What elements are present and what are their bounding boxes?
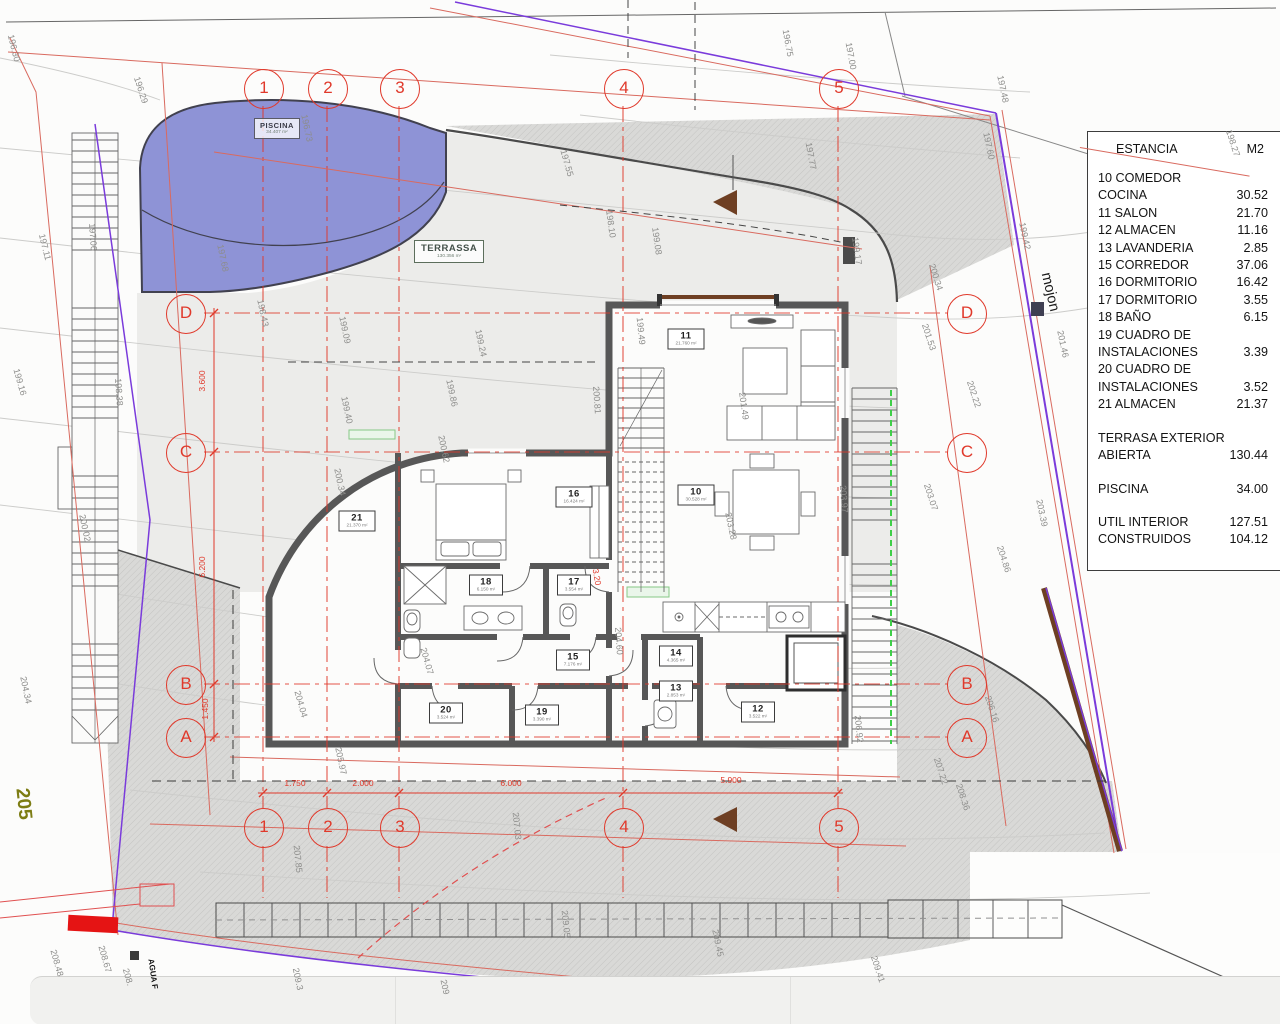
dining-table — [733, 470, 799, 534]
room-area-value: 16.42 — [1236, 274, 1270, 291]
room-area-value: 11.16 — [1237, 222, 1270, 239]
room-name: 15 CORREDOR — [1098, 257, 1236, 274]
room-name: PISCINA — [1098, 481, 1236, 498]
room-area-value: 6.15 — [1243, 309, 1270, 326]
table-row: CONSTRUIDOS104.12 — [1098, 531, 1270, 548]
shaft-box — [787, 636, 845, 690]
mojon-marker — [1031, 302, 1044, 316]
bottom-band — [30, 976, 1280, 1024]
site-plan-canvas: ESTANCIA M2 10 COMEDOR COCINA30.5211 SAL… — [0, 0, 1280, 1024]
room-name: 16 DORMITORIO — [1098, 274, 1236, 291]
agua-marker-icon — [130, 951, 139, 960]
room-name: 21 ALMACEN — [1098, 396, 1236, 413]
band-seam — [790, 977, 791, 1024]
table-row: 16 DORMITORIO16.42 — [1098, 274, 1270, 291]
room-name: 11 SALON — [1098, 205, 1236, 222]
room-area-value: 3.52 — [1243, 379, 1270, 396]
room-name: CONSTRUIDOS — [1098, 531, 1229, 548]
table-row: 19 CUADRO DE INSTALACIONES3.39 — [1098, 327, 1270, 362]
room-area-value: 127.51 — [1229, 514, 1270, 531]
table-row: 15 CORREDOR37.06 — [1098, 257, 1270, 274]
table-row: 20 CUADRO DE INSTALACIONES3.52 — [1098, 361, 1270, 396]
piscina-label: PISCINA 34.407 m² — [254, 118, 300, 139]
table-header-m2: M2 — [1247, 142, 1264, 156]
room-schedule-table: ESTANCIA M2 10 COMEDOR COCINA30.5211 SAL… — [1087, 131, 1280, 571]
hatch-right — [897, 625, 1103, 781]
room-area-value: 30.52 — [1236, 187, 1270, 204]
table-row: PISCINA34.00 — [1098, 481, 1270, 498]
table-row: 12 ALMACEN11.16 — [1098, 222, 1270, 239]
room-name: 13 LAVANDERIA — [1098, 240, 1243, 257]
room-name: 20 CUADRO DE INSTALACIONES — [1098, 361, 1243, 396]
room-name: 10 COMEDOR COCINA — [1098, 170, 1236, 205]
room-area-value: 34.00 — [1236, 481, 1270, 498]
room-name: TERRASA EXTERIOR ABIERTA — [1098, 430, 1229, 465]
terrassa-title: TERRASSA — [421, 243, 477, 254]
terrassa-label: TERRASSA 130.356 m² — [414, 240, 484, 263]
room-name: 17 DORMITORIO — [1098, 292, 1243, 309]
coffee-table — [743, 348, 787, 394]
terrassa-area: 130.356 m² — [427, 254, 472, 259]
room-area-value: 3.55 — [1243, 292, 1270, 309]
sofa-horizontal — [727, 406, 835, 440]
table-row: 13 LAVANDERIA2.85 — [1098, 240, 1270, 257]
table-row: 21 ALMACEN21.37 — [1098, 396, 1270, 413]
room-name: 19 CUADRO DE INSTALACIONES — [1098, 327, 1243, 362]
room-table-rows: 10 COMEDOR COCINA30.5211 SALON21.7012 AL… — [1098, 170, 1270, 549]
room-area-value: 21.37 — [1236, 396, 1270, 413]
table-row: 11 SALON21.70 — [1098, 205, 1270, 222]
table-row: 17 DORMITORIO3.55 — [1098, 292, 1270, 309]
wardrobe — [590, 486, 609, 558]
band-seam — [395, 977, 396, 1024]
room-area-value: 37.06 — [1236, 257, 1270, 274]
piscina-title: PISCINA — [260, 121, 294, 130]
pier — [843, 237, 855, 264]
table-row: 18 BAÑO6.15 — [1098, 309, 1270, 326]
table-row: UTIL INTERIOR127.51 — [1098, 514, 1270, 531]
room-area-value: 104.12 — [1229, 531, 1270, 548]
piscina-area: 34.407 m² — [263, 130, 290, 135]
room-name: 18 BAÑO — [1098, 309, 1243, 326]
table-row: TERRASA EXTERIOR ABIERTA130.44 — [1098, 430, 1270, 465]
plot-number-205: 205 — [10, 787, 35, 821]
room-name: UTIL INTERIOR — [1098, 514, 1229, 531]
room-name: 12 ALMACEN — [1098, 222, 1237, 239]
room-area-value: 130.44 — [1229, 447, 1270, 464]
room-area-value: 3.39 — [1243, 344, 1270, 361]
room-area-value: 2.85 — [1243, 240, 1270, 257]
room-area-value: 21.70 — [1236, 205, 1270, 222]
red-marker-bar — [68, 915, 119, 934]
